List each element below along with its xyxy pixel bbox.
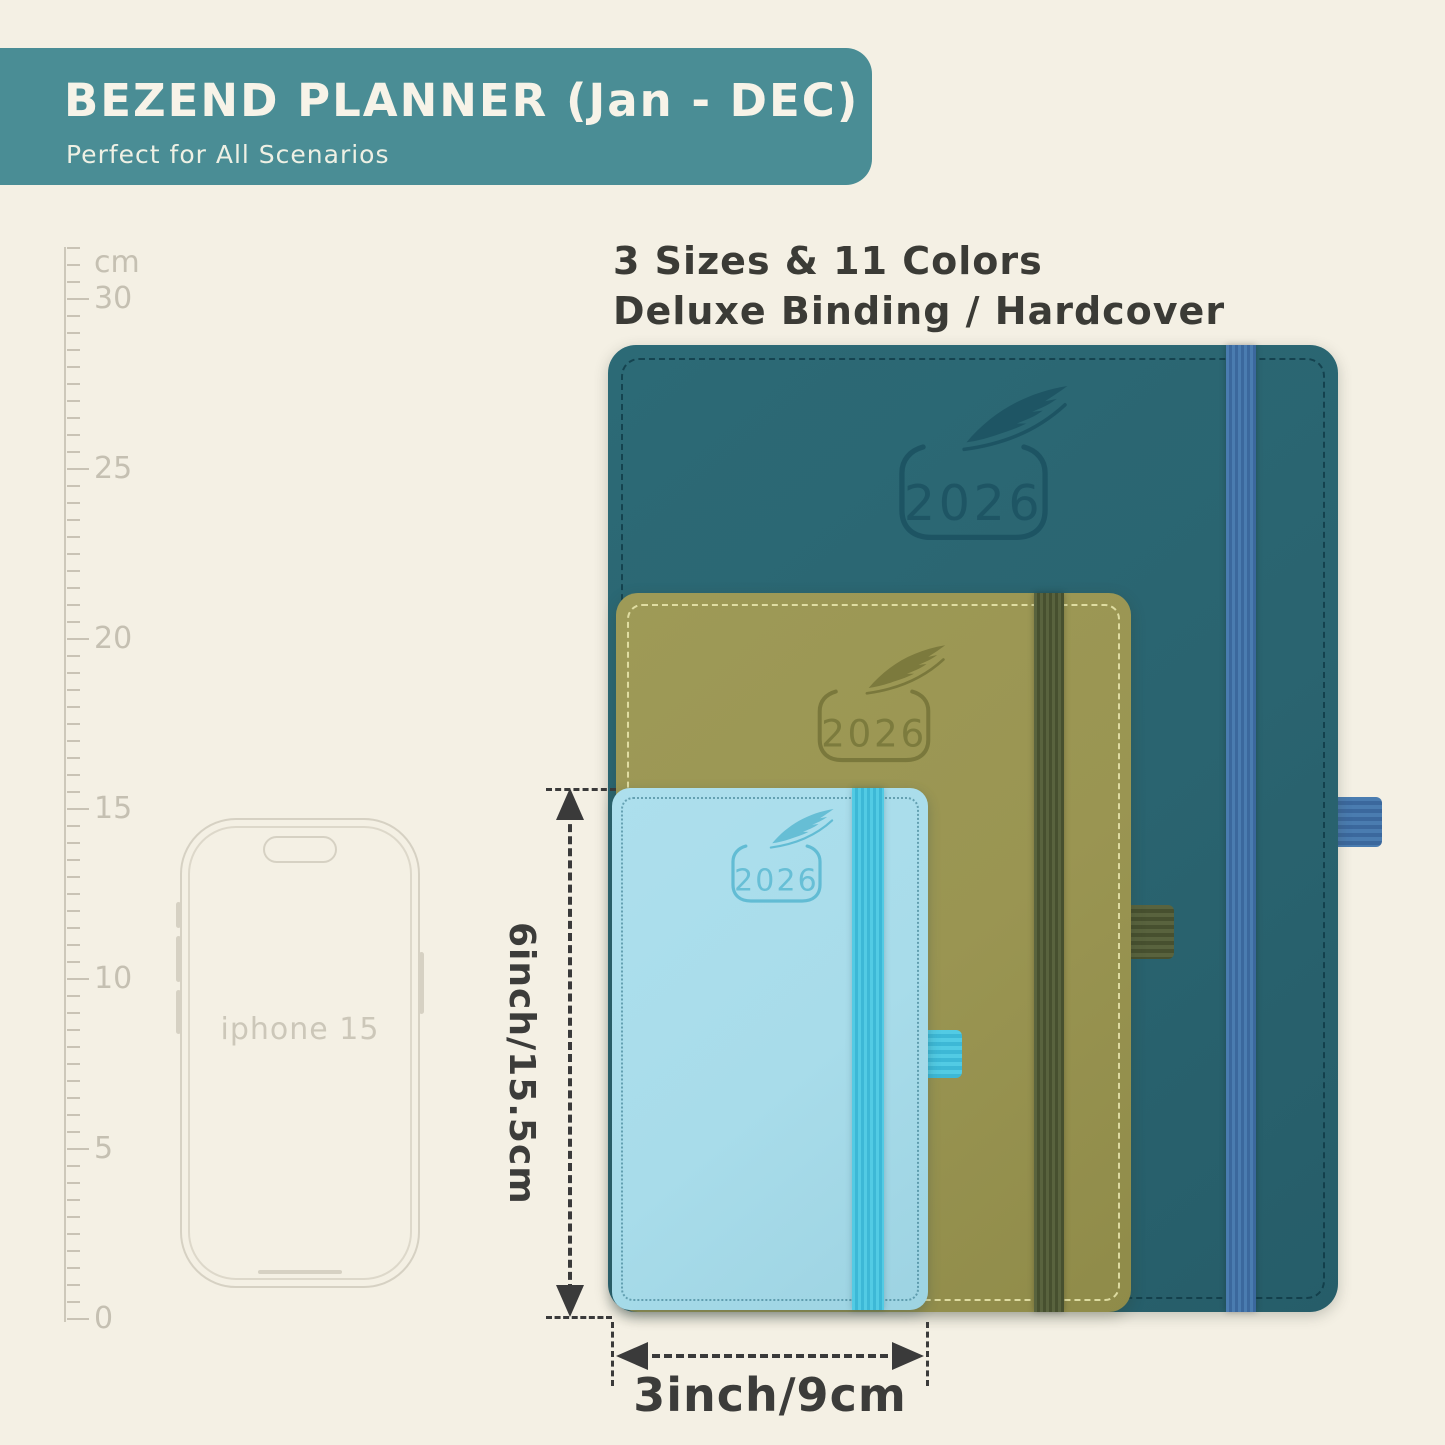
dim-extension-right [926, 1322, 929, 1386]
year-logo-large: 2026 [856, 386, 1091, 562]
ruler-label-25: 25 [94, 452, 164, 486]
phone-action-button [176, 902, 181, 928]
dim-width-line [640, 1354, 900, 1358]
ruler-unit-label: cm [94, 246, 164, 280]
feature-text: 3 Sizes & 11 Colors Deluxe Binding / Har… [613, 236, 1225, 336]
dim-extension-left [611, 1322, 614, 1386]
arrow-left-icon [616, 1342, 648, 1370]
ruler-label-0: 0 [94, 1302, 164, 1336]
phone-bottom-bar [258, 1270, 342, 1274]
width-dimension-label: 3inch/9cm [620, 1368, 920, 1422]
ruler-major-ticks [67, 298, 89, 1322]
pen-loop-large [1332, 797, 1382, 847]
logo-svg: 2026 [705, 809, 848, 916]
elastic-band-medium [1034, 593, 1064, 1312]
year-logo-small: 2026 [705, 809, 848, 916]
logo-svg: 2026 [785, 645, 963, 779]
ruler-label-20: 20 [94, 622, 164, 656]
feature-line-binding: Deluxe Binding / Hardcover [613, 286, 1225, 336]
logo-svg: 2026 [856, 386, 1091, 562]
ruler-edge-line [64, 247, 66, 1322]
dim-height-line [568, 812, 572, 1292]
arrow-up-icon [556, 788, 584, 820]
ruler-label-5: 5 [94, 1132, 164, 1166]
feather-icon [964, 386, 1067, 449]
year-text: 2026 [821, 712, 927, 756]
height-dimension-label: 6inch/15.5cm [502, 922, 542, 1162]
feature-line-sizes: 3 Sizes & 11 Colors [613, 236, 1225, 286]
phone-screen-outline [188, 826, 412, 1280]
elastic-band-small [852, 788, 884, 1310]
ruler-label-30: 30 [94, 282, 164, 316]
feather-icon [771, 809, 834, 848]
phone-dynamic-island [263, 836, 337, 863]
year-text: 2026 [904, 474, 1043, 532]
phone-model-label: iphone 15 [180, 1012, 420, 1047]
product-image: BEZEND PLANNER (Jan - DEC) Perfect for A… [0, 0, 1445, 1445]
year-text: 2026 [734, 863, 819, 898]
product-subtitle: Perfect for All Scenarios [66, 140, 390, 169]
title-banner: BEZEND PLANNER (Jan - DEC) Perfect for A… [0, 48, 872, 185]
arrow-down-icon [556, 1285, 584, 1317]
feather-icon [867, 645, 945, 693]
pen-loop-medium [1124, 905, 1174, 959]
arrow-right-icon [892, 1342, 924, 1370]
ruler-label-10: 10 [94, 962, 164, 996]
phone-power-button [419, 952, 424, 1014]
year-logo-medium: 2026 [785, 645, 963, 779]
phone-volume-up-button [176, 936, 181, 982]
product-title: BEZEND PLANNER (Jan - DEC) [64, 74, 859, 127]
ruler-label-15: 15 [94, 792, 164, 826]
elastic-band-large [1226, 345, 1256, 1312]
